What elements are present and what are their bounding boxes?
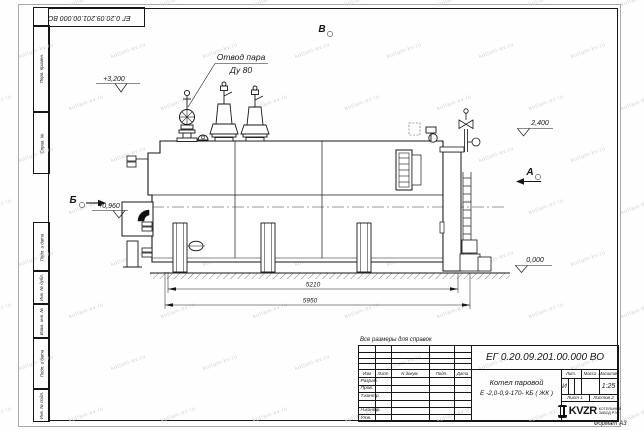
row-prov: Пров. xyxy=(361,386,374,391)
steam-outlet-callout: Отвод пара Ду 80 xyxy=(188,52,268,107)
col-scale: Масштаб xyxy=(599,369,618,378)
water-gauge-column xyxy=(396,123,421,190)
rear-structure xyxy=(440,147,491,271)
row-utv: Утв. xyxy=(361,416,372,421)
frame-cell-podp-data-2: Подп. и дата xyxy=(33,337,50,390)
titleblock-doc-number: ЕГ 0.20.09.201.00.000 ВО xyxy=(472,346,618,369)
format-label: Формат А3 xyxy=(575,421,644,427)
kvzr-logo-text: KVZR xyxy=(569,405,597,417)
hdr-data: Дата xyxy=(454,369,471,377)
steam-outlet-label-1: Отвод пара xyxy=(217,52,266,62)
steam-outlet-label-2: Ду 80 xyxy=(229,65,252,75)
row-tkontr: Т.контр. xyxy=(361,394,380,399)
svg-text:В: В xyxy=(318,24,325,35)
row-razrab: Разраб. xyxy=(361,379,378,384)
hdr-list: Лист xyxy=(375,369,391,377)
kvzr-logo: KVZR КОТЕЛЬНЫЙ ЗАВОД РЭП xyxy=(561,401,618,421)
elevation-3200: +3,200 xyxy=(96,76,140,92)
elevation-2400: 2,400 xyxy=(517,120,553,136)
hdr-izm: Изм xyxy=(359,369,375,377)
elevation-0000: 0,000 xyxy=(515,257,552,273)
drum-fitting xyxy=(426,127,437,142)
drawing-sheet: kotlam-kv.rukotlam-kv.rukotlam-kv.rukotl… xyxy=(0,0,644,430)
hdr-podp: Подп. xyxy=(429,369,454,377)
dim-5210-label: 5210 xyxy=(306,282,321,289)
safety-valve-2 xyxy=(241,86,269,141)
frame-cell-vzam-inv: Взам. инв. № xyxy=(33,303,50,339)
sheets-total: Листов 2 xyxy=(589,394,618,401)
kvzr-logo-caption: КОТЕЛЬНЫЙ ЗАВОД РЭП xyxy=(599,407,622,415)
riser-pipe-valve xyxy=(459,109,480,152)
view-marker-v: В xyxy=(318,24,332,37)
col-lit: Лит. xyxy=(561,369,581,378)
scale-value: 1:25 xyxy=(599,378,618,394)
frame-cell-podp-data-1: Подп. и дата xyxy=(33,222,50,272)
lifting-lug xyxy=(198,135,208,140)
col-mass: Масса xyxy=(581,369,599,378)
svg-text:0,000: 0,000 xyxy=(526,257,544,264)
frame-cell-sprav-n: Справ. № xyxy=(33,112,50,174)
svg-text:А: А xyxy=(525,167,533,178)
title-block: ЕГ 0.20.09.201.00.000 ВО Котел паровой Е… xyxy=(358,345,619,422)
sheet-number: Лист 1 xyxy=(561,394,589,401)
rotated-doc-number: ЕГ 0.20.09.201.00.000 ВО xyxy=(48,14,131,21)
reference-note: Все размеры для справок xyxy=(360,337,433,343)
dim-5950-label: 5950 xyxy=(303,298,318,305)
svg-text:2,400: 2,400 xyxy=(530,120,549,127)
rotated-doc-number-box: ЕГ 0.20.09.201.00.000 ВО xyxy=(33,7,145,27)
svg-text:Б: Б xyxy=(69,195,76,206)
steam-outlet-valve xyxy=(177,90,197,141)
frame-cell-inv-dubl: Инв. № дубл. xyxy=(33,270,50,305)
row-nkontr: Н.контр. xyxy=(361,408,381,413)
frame-cell-inv-podl: Инв. № подл. xyxy=(33,388,50,422)
lit-value: И xyxy=(561,378,568,394)
kvzr-logo-icon xyxy=(558,405,567,418)
safety-valve-1 xyxy=(210,82,238,141)
titleblock-product-name: Котел паровой Е -2,0-0,9-170- КБ ( ЖК ) xyxy=(472,372,561,421)
ground-line xyxy=(150,273,510,279)
hdr-ndokum: N докум. xyxy=(391,369,429,377)
svg-text:+3,200: +3,200 xyxy=(103,76,125,83)
view-marker-a: А xyxy=(516,167,541,185)
frame-cell-perv-primen: Перв. примен. xyxy=(33,25,50,112)
